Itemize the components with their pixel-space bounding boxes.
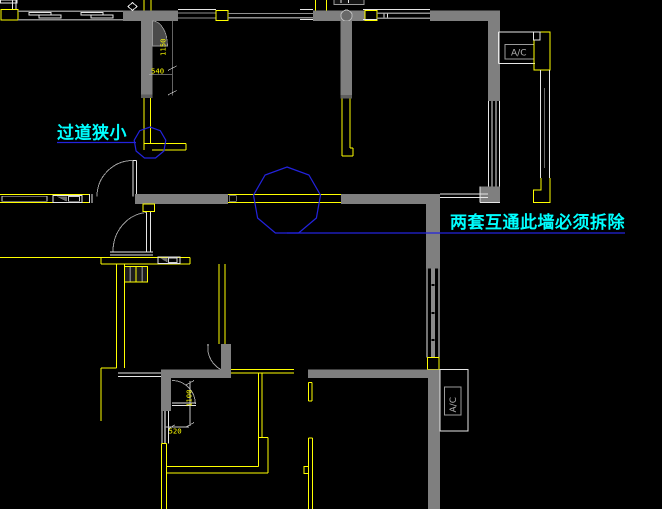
wall-segment: [313, 10, 365, 21]
dim-1150: 1150: [159, 38, 168, 56]
ac-label-bottom: A/C: [449, 397, 459, 412]
floor-plan-canvas[interactable]: 1150 540 A/C: [0, 0, 662, 509]
wall-segment: [123, 10, 178, 21]
ac-label-top: A/C: [511, 49, 526, 59]
dim-520: 520: [169, 427, 182, 436]
wall-segment: [430, 10, 500, 21]
demolish-note-text: 两套互通此墙必须拆除: [450, 212, 625, 233]
dim-1100: 1100: [185, 389, 194, 407]
canvas-background: [0, 0, 662, 509]
column-symbol: [341, 10, 352, 21]
dim-540: 540: [151, 67, 164, 76]
corridor-note-text: 过道狭小: [57, 123, 127, 144]
